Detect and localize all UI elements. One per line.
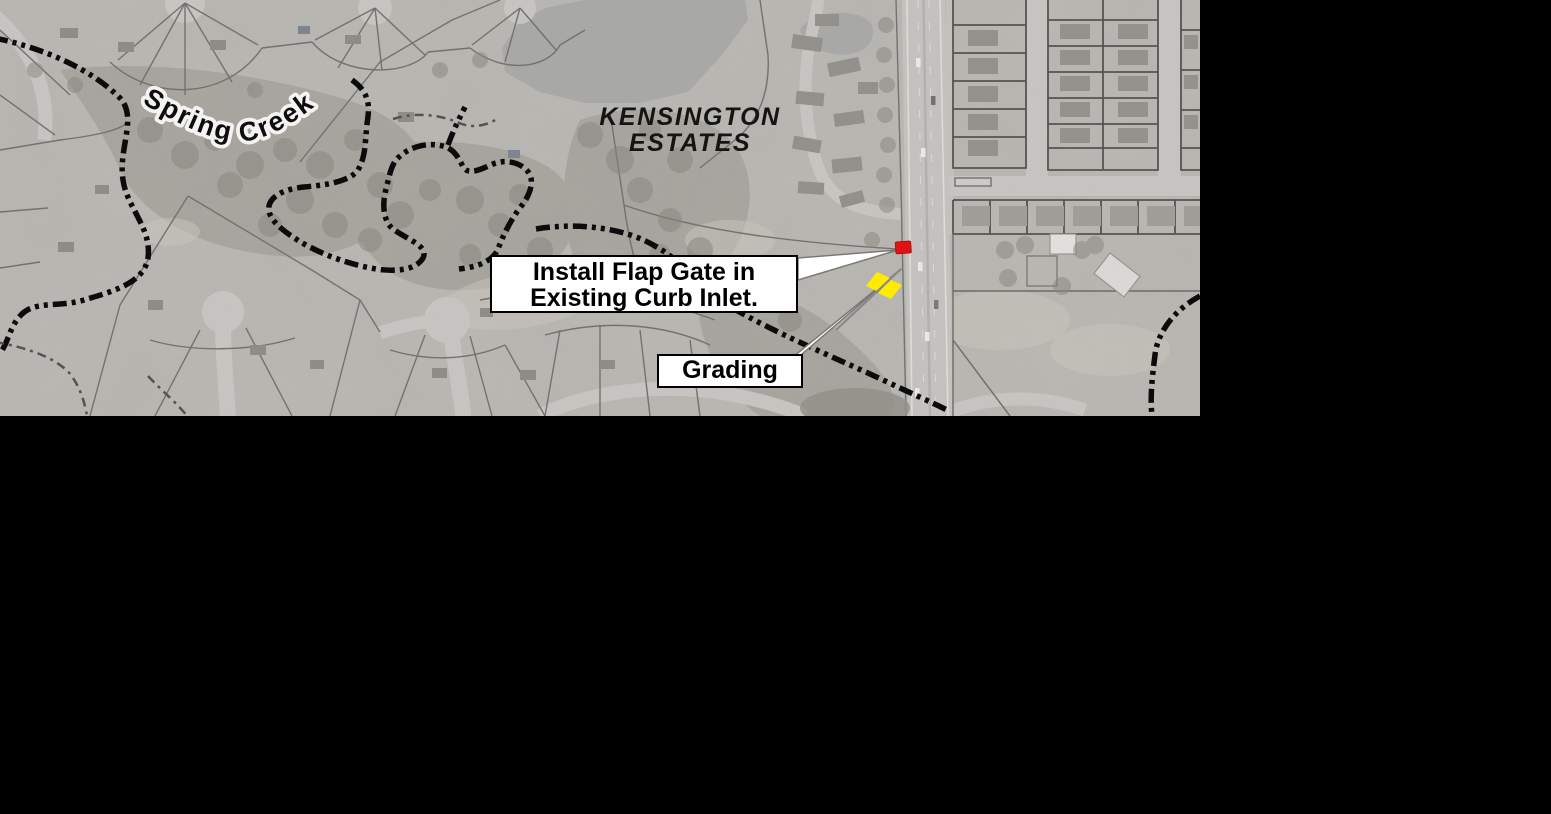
callout-flap-gate-line1: Install Flap Gate in — [492, 259, 796, 285]
callout-install-flap-gate: Install Flap Gate in Existing Curb Inlet… — [490, 255, 798, 313]
kensington-estates-line1: KENSINGTON — [563, 104, 817, 130]
flap-gate-marker-icon — [895, 241, 911, 254]
aerial-map-canvas: Spring Creek — [0, 0, 1200, 416]
kensington-estates-line2: ESTATES — [563, 130, 817, 156]
callout-flap-gate-line2: Existing Curb Inlet. — [492, 285, 796, 311]
callout-grading-label: Grading — [659, 356, 801, 385]
aerial-map-image: Spring Creek KENSINGTON ESTATES Install … — [0, 0, 1200, 416]
kensington-estates-label: KENSINGTON ESTATES — [563, 104, 817, 156]
callout-grading: Grading — [657, 354, 803, 388]
